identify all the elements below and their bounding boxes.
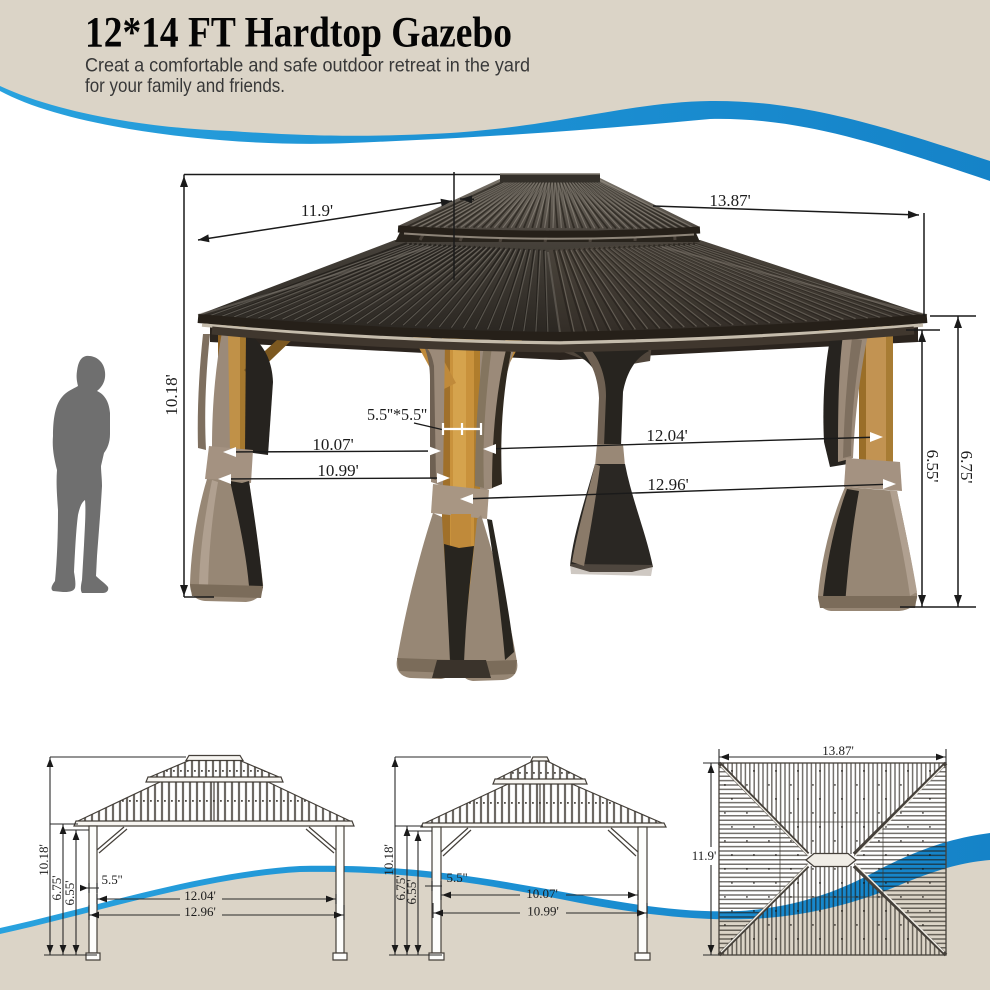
svg-text:for your family and friends.: for your family and friends.: [85, 75, 285, 97]
svg-text:5.5'': 5.5'': [447, 870, 468, 885]
svg-text:10.18': 10.18': [381, 844, 396, 876]
svg-text:10.99': 10.99': [317, 461, 358, 480]
svg-text:13.87': 13.87': [822, 743, 854, 758]
svg-text:10.18': 10.18': [36, 844, 51, 876]
svg-text:11.9': 11.9': [301, 201, 333, 220]
svg-text:13.87': 13.87': [709, 191, 750, 210]
svg-text:6.55': 6.55': [404, 879, 419, 904]
svg-text:10.18': 10.18': [162, 374, 181, 415]
svg-text:5.5''*5.5'': 5.5''*5.5'': [367, 405, 427, 424]
svg-text:12*14 FT Hardtop Gazebo: 12*14 FT Hardtop Gazebo: [85, 10, 512, 57]
svg-text:6.55': 6.55': [62, 880, 77, 905]
svg-text:6.75': 6.75': [957, 451, 976, 484]
svg-text:12.96': 12.96': [647, 475, 688, 494]
svg-text:12.04': 12.04': [184, 888, 216, 903]
svg-text:Creat a comfortable and safe o: Creat a comfortable and safe outdoor ret…: [85, 55, 530, 77]
svg-text:11.9': 11.9': [692, 848, 717, 863]
svg-text:10.07': 10.07': [526, 886, 558, 901]
svg-text:12.04': 12.04': [646, 426, 687, 445]
svg-text:6.55': 6.55': [923, 450, 942, 483]
svg-text:10.99': 10.99': [527, 904, 559, 919]
svg-text:10.07': 10.07': [312, 435, 353, 454]
svg-text:12.96': 12.96': [184, 904, 216, 919]
svg-text:5.5'': 5.5'': [102, 872, 123, 887]
